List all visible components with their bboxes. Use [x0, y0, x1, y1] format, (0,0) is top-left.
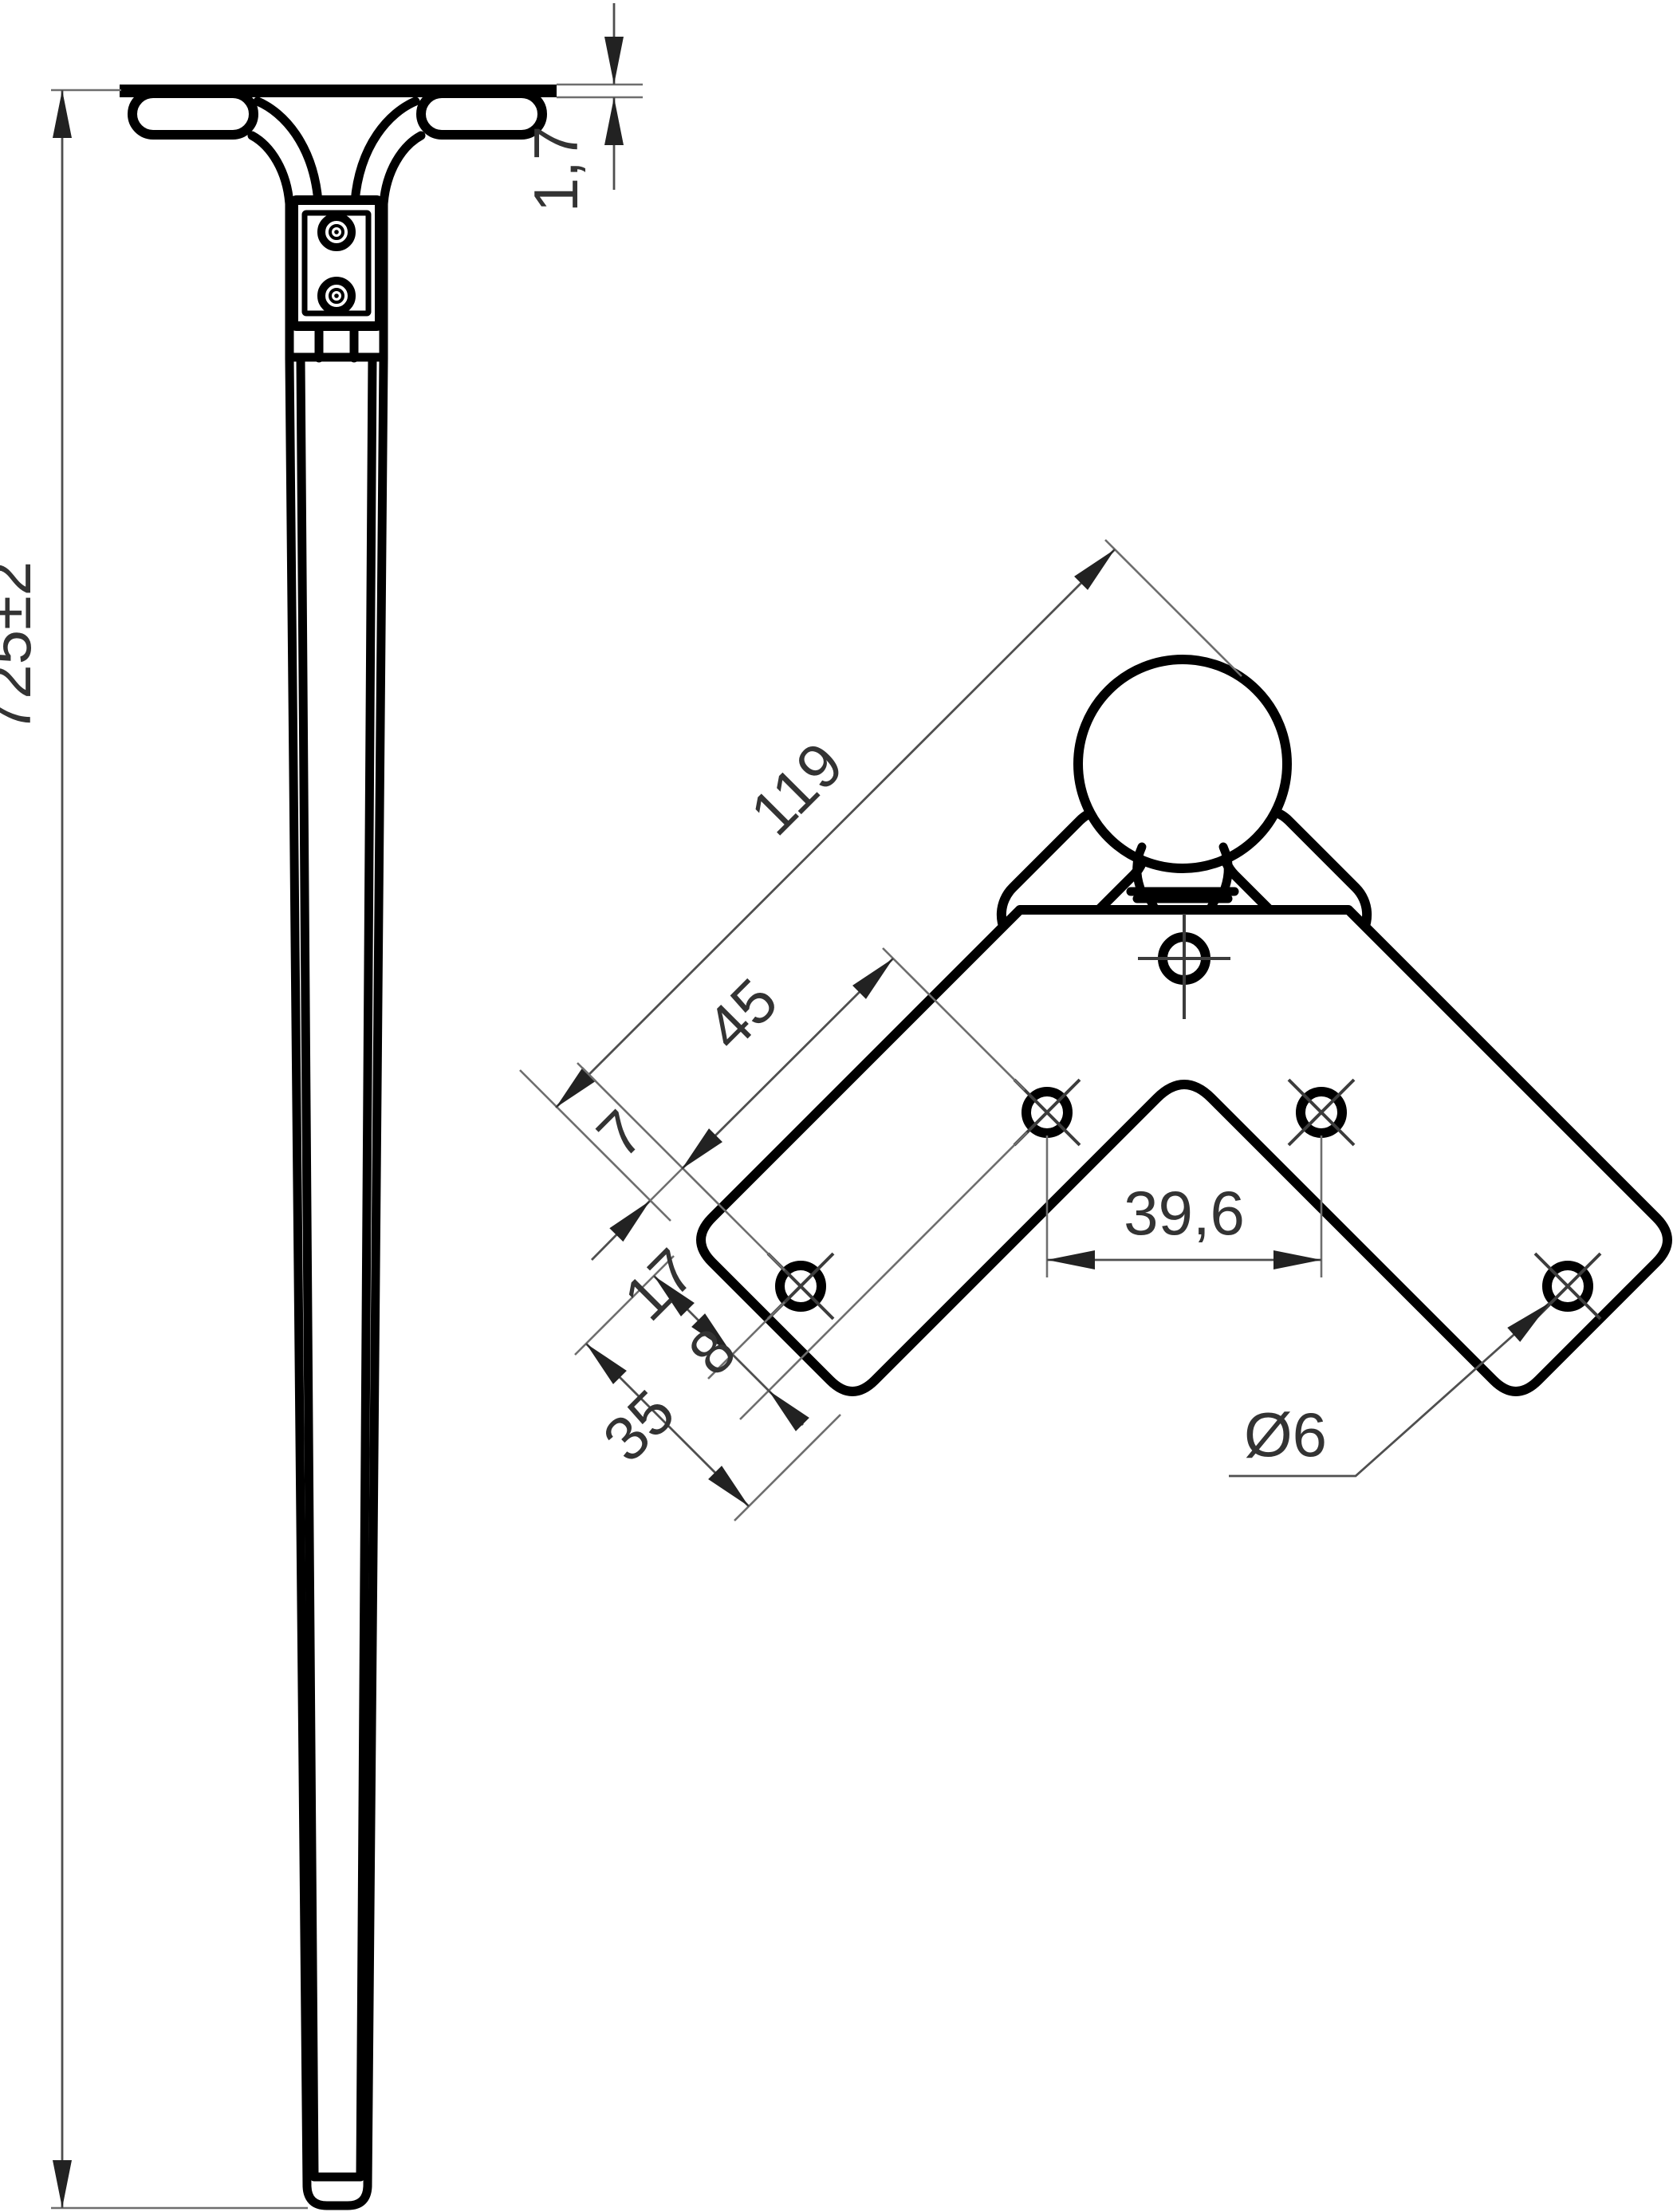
leg-ball-top [1078, 659, 1287, 868]
technical-drawing-canvas: 725±2 1,7 [0, 0, 1673, 2212]
dim-center-spacing-label: 39,6 [1124, 1178, 1245, 1248]
leg-side-view: 725±2 1,7 [0, 3, 643, 2208]
left-mount-tube [132, 93, 254, 135]
funnel-outer-right [384, 136, 421, 358]
drawing-page: 725±2 1,7 [0, 0, 1673, 2212]
clamp-screw-top [321, 217, 352, 247]
dim-end-offset: 7 [583, 1096, 682, 1260]
funnel-outer-left [252, 136, 289, 358]
dim-plate-width-label: 35 [589, 1376, 688, 1475]
dim-row-gap-label: 8 [675, 1314, 749, 1388]
plate-top-view: 119 45 7 17 8 35 [520, 540, 1667, 1521]
clamp-screw-bottom [321, 281, 352, 311]
dim-overall-length-label: 119 [737, 729, 856, 848]
dim-overall-height: 725±2 [0, 90, 308, 2208]
dim-overall-height-label: 725±2 [0, 561, 44, 734]
top-plate [120, 85, 557, 97]
dim-plate-thickness-label: 1,7 [521, 126, 591, 212]
dim-hole-pitch-label: 45 [692, 965, 791, 1064]
dim-hole-diameter-label: Ø6 [1244, 1399, 1327, 1470]
dim-end-offset-label: 7 [583, 1096, 657, 1171]
